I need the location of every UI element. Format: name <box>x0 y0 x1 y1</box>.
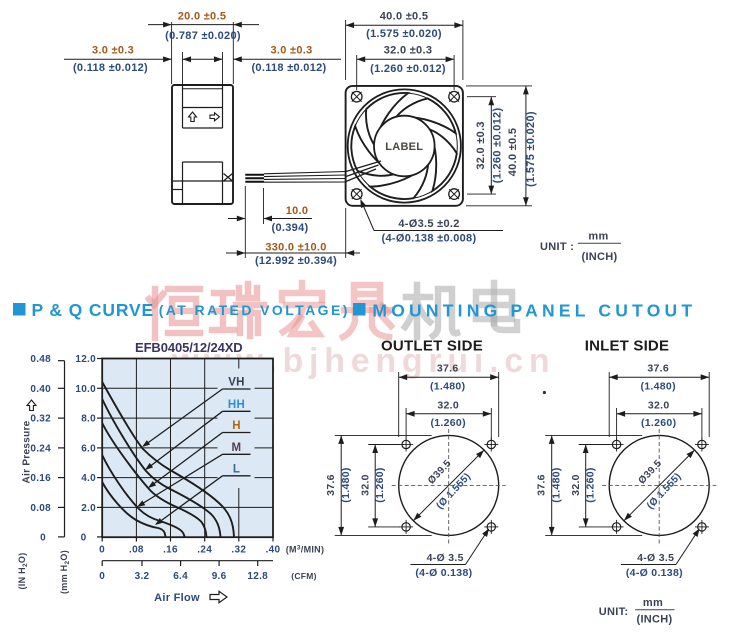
svg-text:(1.260): (1.260) <box>585 467 597 502</box>
svg-text:4-Ø3.5 ±0.2: 4-Ø3.5 ±0.2 <box>398 218 459 230</box>
svg-text:UNIT :: UNIT : <box>540 241 574 253</box>
svg-text:40.0 ±0.5: 40.0 ±0.5 <box>380 11 429 23</box>
svg-text:EFB0405/12/24XD: EFB0405/12/24XD <box>135 340 243 355</box>
svg-text:9.6: 9.6 <box>212 571 227 582</box>
svg-text:37.6: 37.6 <box>325 474 337 496</box>
svg-text:0: 0 <box>99 545 105 556</box>
svg-text:L: L <box>233 463 240 475</box>
svg-text:4.0: 4.0 <box>81 473 96 484</box>
svg-text:0.08: 0.08 <box>30 503 51 514</box>
svg-text:32.0: 32.0 <box>648 400 670 412</box>
svg-text:32.0 ±0.3: 32.0 ±0.3 <box>384 45 433 57</box>
svg-text:0.24: 0.24 <box>30 443 51 454</box>
svg-text:.32: .32 <box>231 545 246 556</box>
svg-text:0.32: 0.32 <box>30 414 51 425</box>
svg-text:32.0: 32.0 <box>437 400 459 412</box>
svg-text:(4-Ø 0.138): (4-Ø 0.138) <box>415 567 472 579</box>
svg-text:4-Ø 3.5: 4-Ø 3.5 <box>427 552 464 564</box>
svg-text:(1.575 ±0.020): (1.575 ±0.020) <box>525 111 537 187</box>
svg-text:3.2: 3.2 <box>135 571 150 582</box>
svg-text:P & Q CURVE: P & Q CURVE <box>32 300 154 320</box>
svg-text:(1.480): (1.480) <box>551 467 563 502</box>
svg-text:(1.260 ±0.012): (1.260 ±0.012) <box>370 63 446 75</box>
svg-text:2.0: 2.0 <box>81 503 96 514</box>
svg-text:(1.480): (1.480) <box>430 381 465 393</box>
svg-text:(0.394): (0.394) <box>272 222 309 234</box>
svg-text:32.0: 32.0 <box>360 474 372 496</box>
svg-text:0.40: 0.40 <box>30 384 51 395</box>
svg-text:UNIT:: UNIT: <box>599 606 629 618</box>
svg-text:(1.260 ±0.012): (1.260 ±0.012) <box>492 108 504 184</box>
svg-text:(INCH): (INCH) <box>636 614 672 626</box>
svg-text:(1.260): (1.260) <box>374 467 386 502</box>
svg-text:LABEL: LABEL <box>385 141 423 153</box>
svg-text:.24: .24 <box>197 545 212 556</box>
svg-text:.16: .16 <box>163 545 178 556</box>
svg-text:6.4: 6.4 <box>173 571 188 582</box>
svg-text:HH: HH <box>228 399 245 411</box>
svg-text:(1.260): (1.260) <box>431 417 466 429</box>
svg-text:12.0: 12.0 <box>75 354 96 365</box>
svg-text:mm: mm <box>643 597 663 609</box>
svg-text:10.0: 10.0 <box>286 205 309 217</box>
svg-text:(INCH): (INCH) <box>581 251 617 263</box>
svg-text:(1.480): (1.480) <box>641 381 676 393</box>
svg-text:0: 0 <box>99 571 105 582</box>
svg-text:0.48: 0.48 <box>30 354 51 365</box>
svg-text:(0.118 ±0.012): (0.118 ±0.012) <box>73 62 148 74</box>
svg-text:6.0: 6.0 <box>81 443 96 454</box>
svg-text:.40: .40 <box>266 545 281 556</box>
svg-text:0: 0 <box>81 532 87 543</box>
svg-text:32.0: 32.0 <box>570 474 582 496</box>
svg-text:(12.992 ±0.394): (12.992 ±0.394) <box>255 255 337 267</box>
svg-text:Air Pressure: Air Pressure <box>22 420 33 483</box>
svg-text:M: M <box>232 442 242 454</box>
svg-text:12.8: 12.8 <box>247 571 268 582</box>
svg-text:10.0: 10.0 <box>75 384 96 395</box>
svg-text:(4-Ø0.138 ±0.008): (4-Ø0.138 ±0.008) <box>382 233 477 245</box>
svg-text:330.0 ±10.0: 330.0 ±10.0 <box>265 242 326 254</box>
svg-text:32.0 ±0.3: 32.0 ±0.3 <box>475 121 487 170</box>
svg-text:(M3/MIN): (M3/MIN) <box>286 545 325 555</box>
svg-text:(1.260): (1.260) <box>641 417 676 429</box>
svg-text:mm: mm <box>588 231 608 243</box>
svg-text:37.6: 37.6 <box>437 363 459 375</box>
svg-text:8.0: 8.0 <box>81 414 96 425</box>
svg-text:3.0 ±0.3: 3.0 ±0.3 <box>270 45 312 57</box>
svg-text:(1.575 ±0.020): (1.575 ±0.020) <box>366 28 442 40</box>
svg-text:3.0 ±0.3: 3.0 ±0.3 <box>92 45 134 57</box>
svg-text:40.0 ±0.5: 40.0 ±0.5 <box>507 128 519 177</box>
svg-text:0.16: 0.16 <box>30 473 51 484</box>
svg-text:H: H <box>232 420 241 432</box>
svg-text:37.6: 37.6 <box>536 474 548 496</box>
svg-text:(4-Ø 0.138): (4-Ø 0.138) <box>626 567 683 579</box>
svg-text:20.0 ±0.5: 20.0 ±0.5 <box>178 11 227 23</box>
svg-text:(0.787 ±0.020): (0.787 ±0.020) <box>165 30 241 42</box>
svg-text:(0.118 ±0.012): (0.118 ±0.012) <box>251 62 326 74</box>
svg-text:OUTLET SIDE: OUTLET SIDE <box>381 338 483 355</box>
svg-text:.08: .08 <box>129 545 144 556</box>
svg-text:Air Flow: Air Flow <box>154 592 200 604</box>
svg-text:VH: VH <box>228 377 245 389</box>
svg-text:0: 0 <box>40 532 46 543</box>
svg-text:(1.480): (1.480) <box>340 467 352 502</box>
svg-text:4-Ø 3.5: 4-Ø 3.5 <box>637 552 674 564</box>
svg-text:INLET SIDE: INLET SIDE <box>585 338 670 355</box>
svg-text:37.6: 37.6 <box>647 363 669 375</box>
svg-text:(CFM): (CFM) <box>291 571 317 581</box>
